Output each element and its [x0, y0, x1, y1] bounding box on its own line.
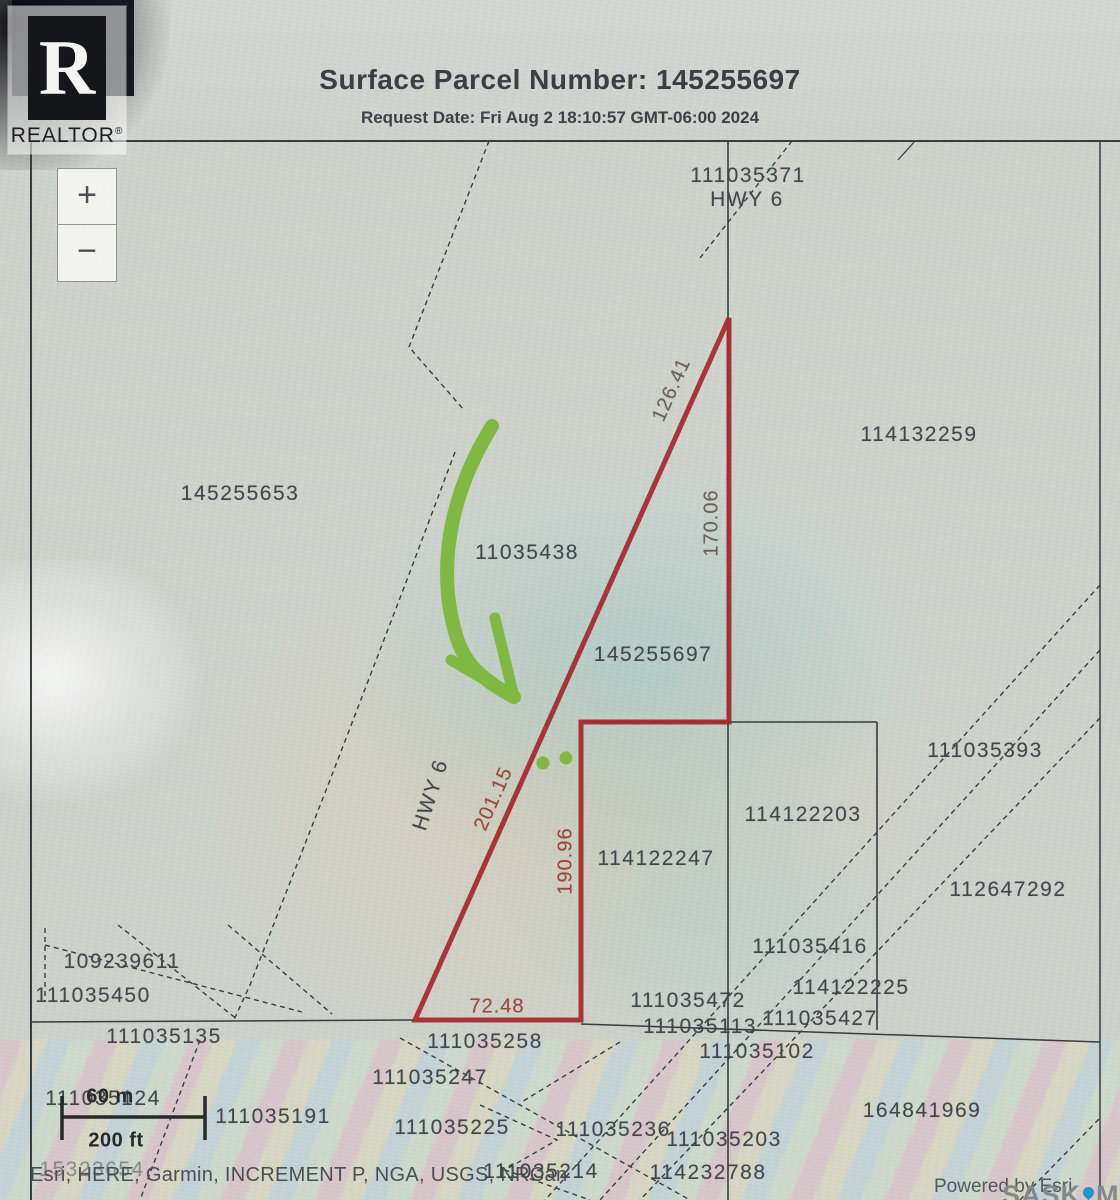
sask-wordmark: SASK: [1002, 1180, 1081, 1200]
map-attribution: Esri, HERE, Garmin, INCREMENT P, NGA, US…: [30, 1164, 567, 1187]
sask-mls-logo: SASK MLS ®: [1002, 1180, 1120, 1200]
map-pin-icon: [1081, 1185, 1097, 1200]
scale-metric-label: 60 m: [86, 1086, 134, 1109]
realtor-logo: R REALTOR®: [8, 6, 126, 154]
scale-bar: [0, 0, 1120, 1200]
zoom-in-button[interactable]: +: [57, 168, 117, 225]
zoom-controls: + −: [57, 168, 117, 282]
page-title: Surface Parcel Number: 145255697: [0, 64, 1120, 96]
request-date: Request Date: Fri Aug 2 18:10:57 GMT-06:…: [0, 108, 1120, 128]
zoom-out-button[interactable]: −: [57, 225, 117, 282]
registered-mark: ®: [115, 126, 123, 137]
mls-wordmark: MLS: [1096, 1180, 1120, 1200]
realtor-wordmark: REALTOR®: [2, 124, 132, 148]
map-canvas[interactable]: 111035371 HWY 6 114132259 145255653 1103…: [0, 0, 1120, 1200]
realtor-r-icon: R: [28, 16, 106, 120]
scale-imperial-label: 200 ft: [88, 1130, 143, 1153]
